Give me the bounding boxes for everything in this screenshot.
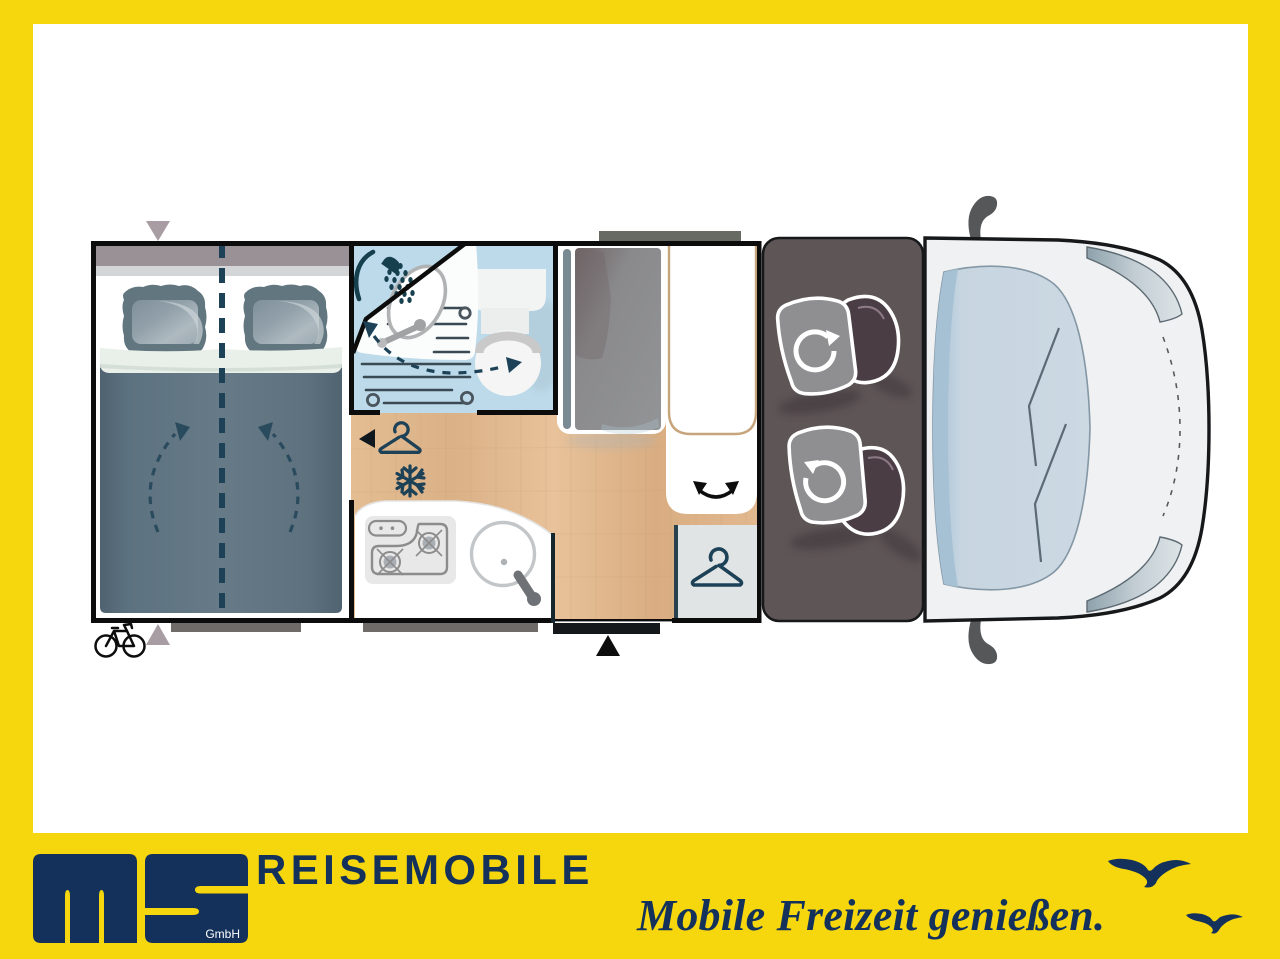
svg-text:Mobile Freizeit genießen.: Mobile Freizeit genießen. (636, 891, 1105, 940)
svg-text:REISEMOBILE: REISEMOBILE (256, 846, 594, 893)
svg-text:GmbH: GmbH (205, 927, 240, 941)
